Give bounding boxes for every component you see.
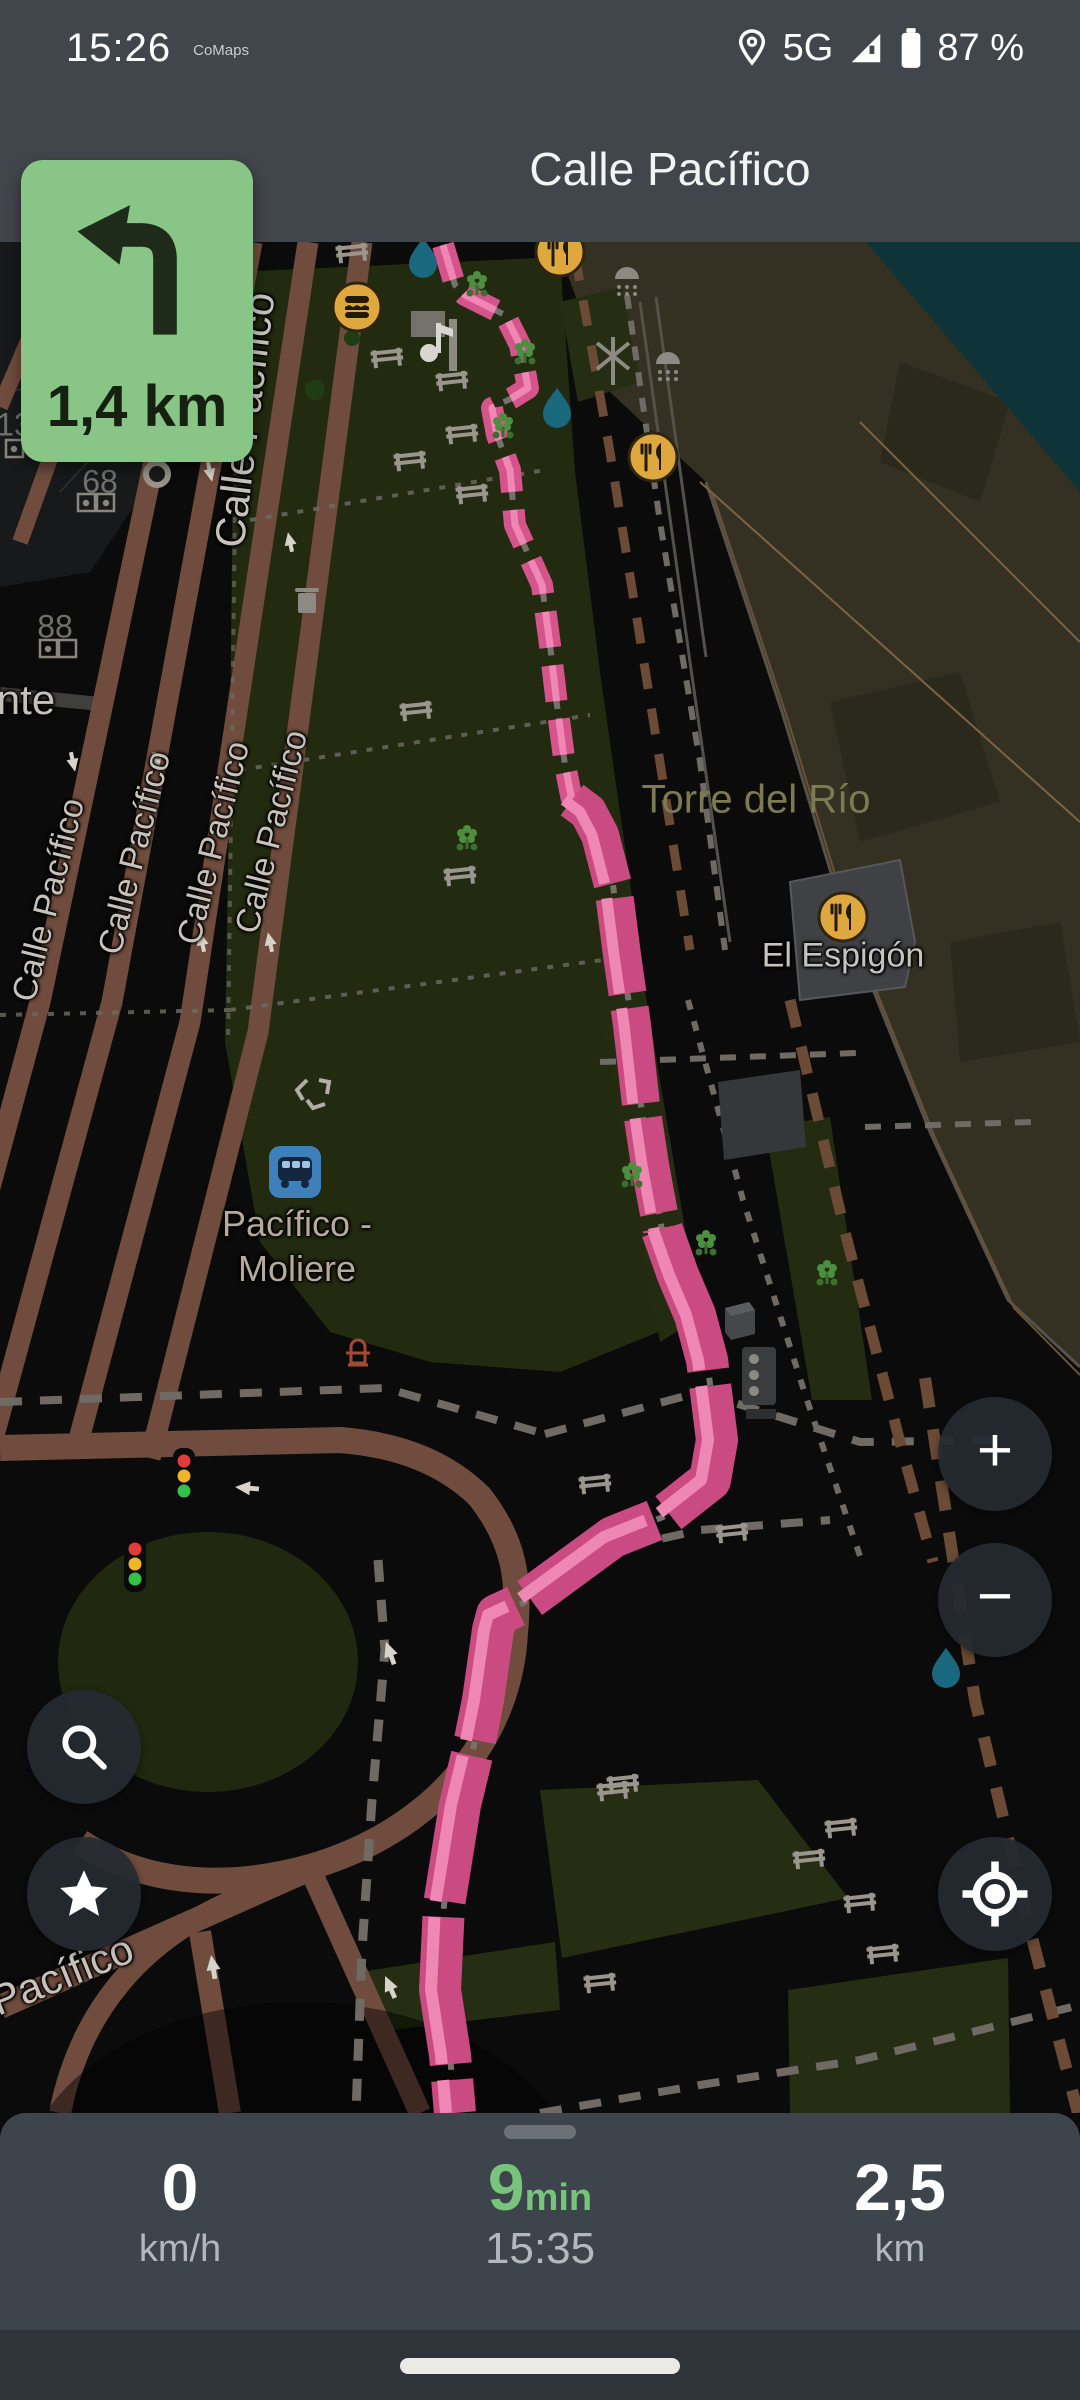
turn-distance: 1,4 km bbox=[47, 373, 228, 440]
map-canvas[interactable]: Calle Pacífico Calle Pacífico Calle Pací… bbox=[0, 242, 1080, 2113]
house-number: 88 bbox=[37, 609, 73, 646]
fast-food-icon[interactable] bbox=[333, 283, 381, 331]
search-icon bbox=[56, 1719, 112, 1775]
status-bar: 15:26 CoMaps 5G 87 % bbox=[0, 0, 1080, 96]
zoom-in-button[interactable]: + bbox=[938, 1397, 1052, 1511]
route-info-panel[interactable]: 0 km/h 9min 15:35 2,5 km bbox=[0, 2113, 1080, 2330]
eta-unit: min bbox=[525, 2177, 593, 2219]
restaurant-icon[interactable] bbox=[536, 242, 584, 276]
system-nav-area bbox=[0, 2330, 1080, 2400]
street-label-partial: nte bbox=[0, 676, 55, 724]
clock: 15:26 bbox=[66, 26, 171, 71]
bookmarks-button[interactable] bbox=[27, 1837, 141, 1951]
bus-stop-label-line2: Moliere bbox=[238, 1248, 356, 1289]
restaurant-icon[interactable] bbox=[629, 433, 677, 481]
my-location-button[interactable] bbox=[938, 1837, 1052, 1951]
gate-icon bbox=[146, 463, 168, 485]
next-street-title: Calle Pacífico bbox=[270, 142, 1070, 196]
gesture-bar[interactable] bbox=[400, 2358, 680, 2374]
speed-unit: km/h bbox=[0, 2228, 360, 2271]
minus-icon: − bbox=[977, 1566, 1013, 1628]
distance-value: 2,5 bbox=[720, 2153, 1080, 2222]
notification-app-label: CoMaps bbox=[193, 42, 249, 59]
eta-stat: 9min 15:35 bbox=[360, 2153, 720, 2274]
poi-label: El Espigón bbox=[762, 937, 925, 976]
bus-stop-label-line1: Pacífico - bbox=[222, 1203, 372, 1244]
arrival-time: 15:35 bbox=[360, 2224, 720, 2274]
bus-stop-icon[interactable] bbox=[269, 1146, 321, 1198]
bus-stop-label: Pacífico - Moliere bbox=[222, 1201, 372, 1291]
locate-icon bbox=[960, 1859, 1030, 1929]
turn-banner[interactable]: 1,4 km bbox=[21, 160, 253, 462]
restaurant-icon[interactable] bbox=[819, 893, 867, 941]
location-pin-icon bbox=[735, 28, 769, 68]
area-label: Torre del Río bbox=[642, 778, 871, 823]
eta-value: 9 bbox=[488, 2150, 525, 2224]
plus-icon: + bbox=[977, 1420, 1013, 1482]
zoom-out-button[interactable]: − bbox=[938, 1543, 1052, 1657]
house-number: 68 bbox=[82, 464, 118, 501]
navigation-app-screen: Calle Pacífico Calle Pacífico Calle Pací… bbox=[0, 0, 1080, 2400]
speed-stat: 0 km/h bbox=[0, 2153, 360, 2274]
speed-value: 0 bbox=[0, 2153, 360, 2222]
battery-percent: 87 % bbox=[937, 27, 1024, 70]
drag-handle[interactable] bbox=[504, 2125, 576, 2139]
turn-left-arrow-icon bbox=[67, 184, 207, 354]
network-type: 5G bbox=[783, 27, 834, 70]
distance-unit: km bbox=[720, 2228, 1080, 2271]
signal-icon bbox=[847, 29, 885, 67]
star-icon bbox=[54, 1864, 114, 1924]
waste-basket-icon bbox=[295, 588, 319, 613]
distance-stat: 2,5 km bbox=[720, 2153, 1080, 2274]
search-button[interactable] bbox=[27, 1690, 141, 1804]
battery-icon bbox=[899, 27, 923, 69]
